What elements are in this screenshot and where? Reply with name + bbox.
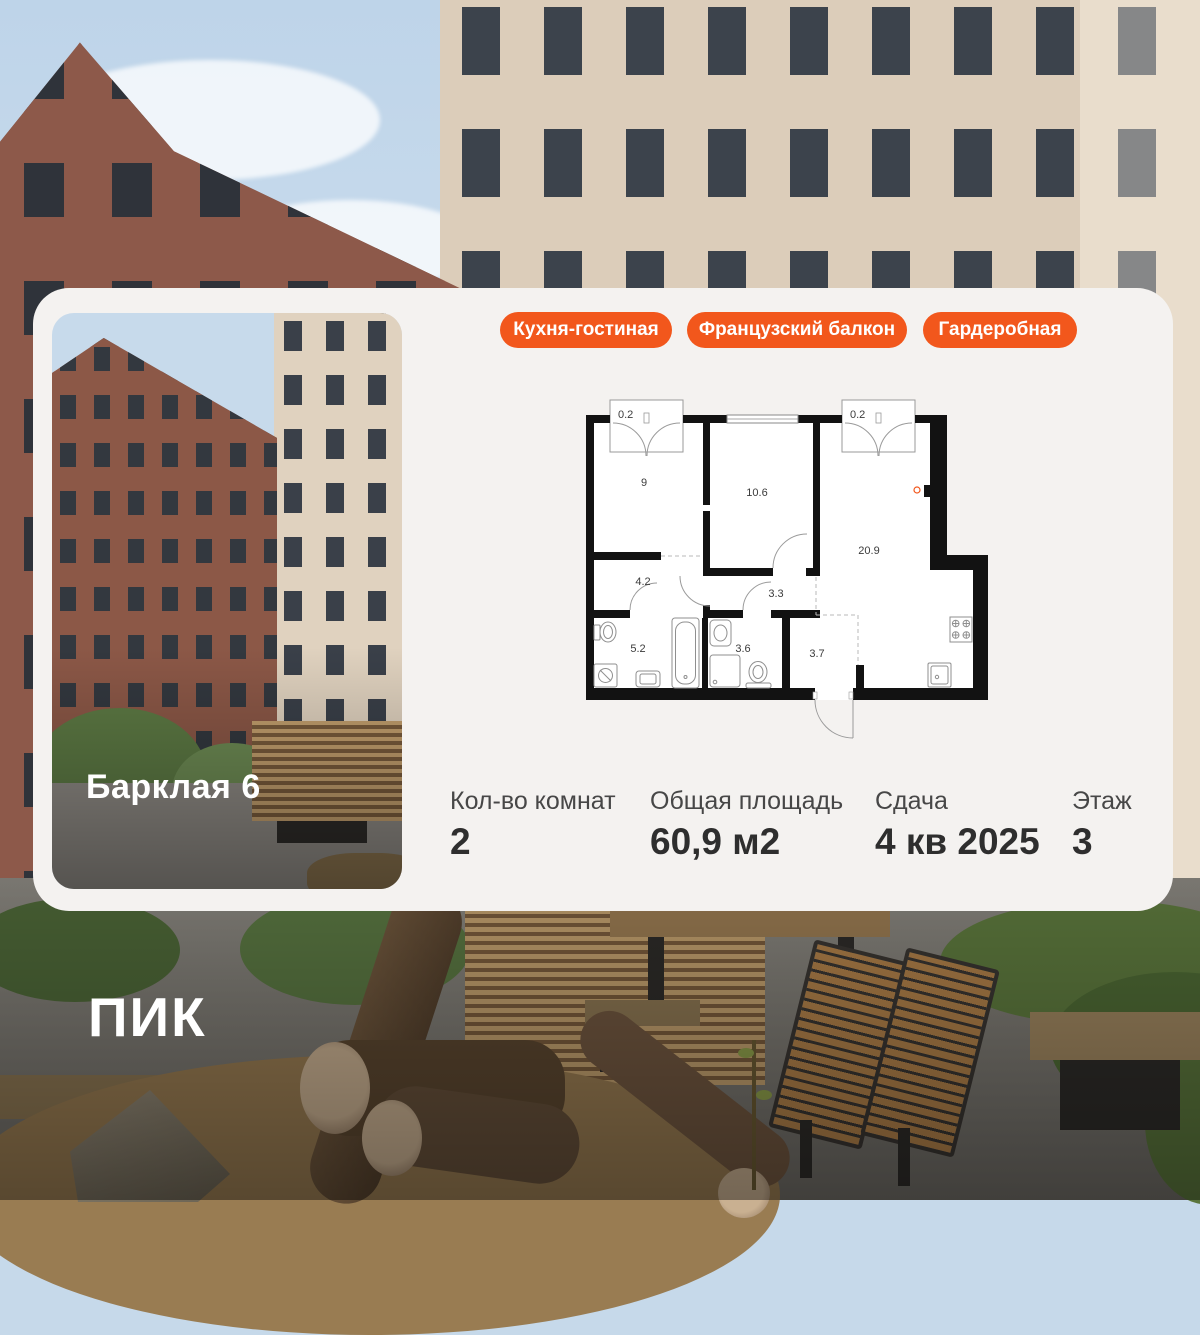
room-label-shower-room: 3.6 xyxy=(735,643,750,655)
listing-card: Барклая 6 Кухня-гостиная Французский бал… xyxy=(33,288,1173,911)
badge-wardrobe[interactable]: Гардеробная xyxy=(923,312,1077,348)
stat-delivery: Сдача 4 кв 2025 xyxy=(875,788,1040,861)
room-label-bathroom: 5.2 xyxy=(630,643,645,655)
room-label-room: 10.6 xyxy=(746,487,767,499)
room-label-wardrobe-hall: 3.7 xyxy=(809,648,824,660)
stat-rooms-label: Кол-во комнат xyxy=(450,788,616,814)
room-label-balcony-right: 0.2 xyxy=(850,409,865,421)
stat-floor-label: Этаж xyxy=(1072,788,1132,814)
stat-rooms: Кол-во комнат 2 xyxy=(450,788,616,861)
room-label-kitchen-living: 20.9 xyxy=(858,545,879,557)
stat-rooms-value: 2 xyxy=(450,823,616,861)
stat-area-label: Общая площадь xyxy=(650,788,843,814)
balcony-door-frame xyxy=(644,413,649,423)
badge-french-balcony[interactable]: Французский балкон xyxy=(687,312,907,348)
room-label-corridor: 3.3 xyxy=(768,588,783,600)
door-jamb xyxy=(813,692,817,699)
stat-area: Общая площадь 60,9 м2 xyxy=(650,788,843,861)
stat-floor-value: 3 xyxy=(1072,823,1132,861)
room-label-bedroom: 9 xyxy=(641,477,647,489)
stat-delivery-value: 4 кв 2025 xyxy=(875,823,1040,861)
project-photo: Барклая 6 xyxy=(52,313,402,889)
stat-delivery-label: Сдача xyxy=(875,788,1040,814)
balcony-right-box xyxy=(842,400,915,452)
door-jamb xyxy=(849,692,853,699)
balcony-door-frame xyxy=(876,413,881,423)
floor-plan: 0.2 0.2 9 10.6 20.9 4.2 3.3 5.2 3.6 3.7 xyxy=(580,396,1000,741)
pik-logo: ПИК xyxy=(88,985,207,1049)
badge-kitchen-living[interactable]: Кухня-гостиная xyxy=(500,312,672,348)
room-label-hall: 4.2 xyxy=(635,576,650,588)
room-label-balcony-left: 0.2 xyxy=(618,409,633,421)
toilet-tank xyxy=(594,625,600,640)
project-name: Барклая 6 xyxy=(86,768,261,807)
balcony-left-box xyxy=(610,400,683,452)
stat-area-value: 60,9 м2 xyxy=(650,823,843,861)
toilet-icon xyxy=(746,683,771,688)
stat-floor: Этаж 3 xyxy=(1072,788,1132,861)
